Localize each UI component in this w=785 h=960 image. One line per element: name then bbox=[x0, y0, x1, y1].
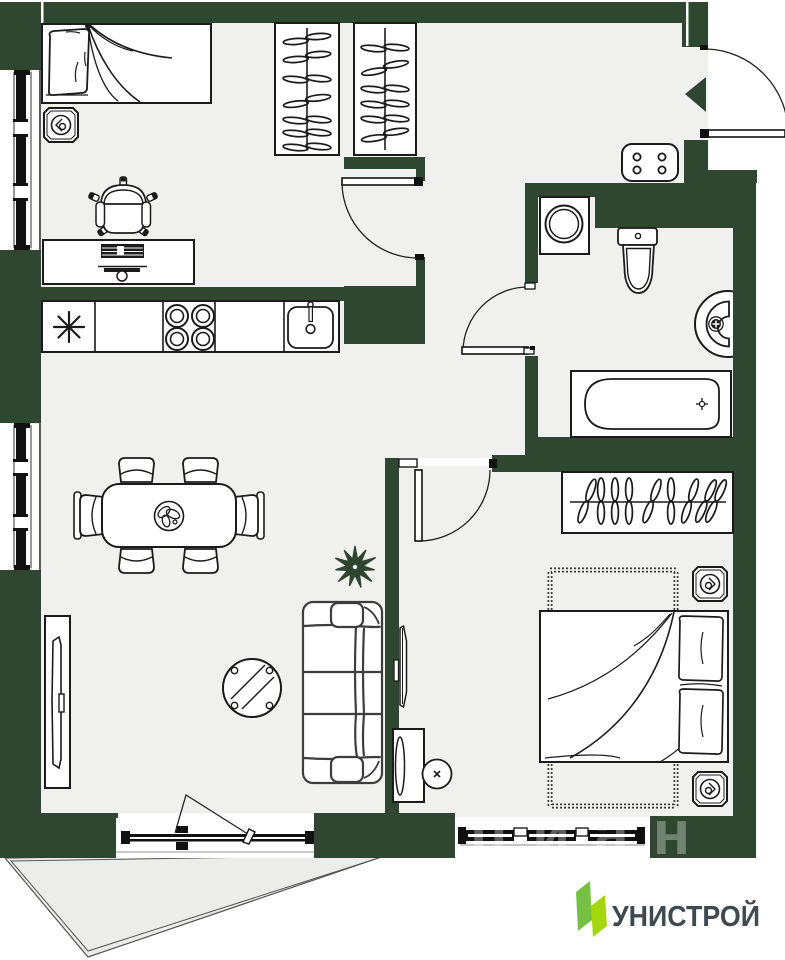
svg-text:циан: циан bbox=[470, 799, 714, 868]
svg-text:УНИСТРОЙ: УНИСТРОЙ bbox=[612, 899, 760, 933]
